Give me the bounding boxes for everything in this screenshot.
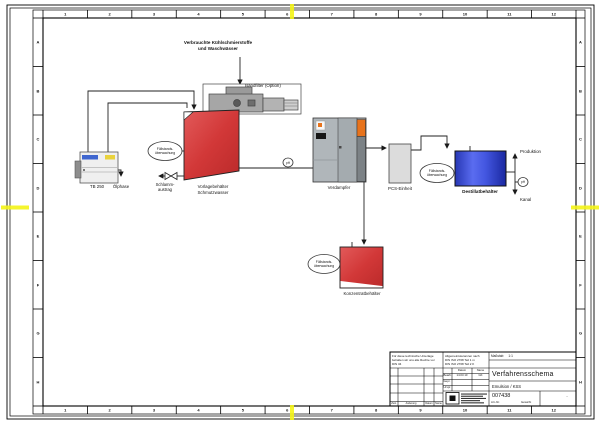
ruler-row-label-left: D [37, 185, 40, 190]
ruler-col-label-bottom: 8 [375, 408, 377, 413]
ruler-row-label-left: G [36, 331, 39, 336]
ruler-row-label-right: A [579, 40, 582, 45]
ruler-row-label-left: C [37, 137, 40, 142]
ruler-col-label-top: 1 [64, 12, 66, 17]
ruler-col-label-bottom: 1 [64, 408, 66, 413]
ruler-col-label-top: 3 [153, 12, 155, 17]
company-address-lines [461, 394, 487, 404]
ruler-col-label-bottom: 3 [153, 408, 155, 413]
ruler-col-label-bottom: 10 [463, 408, 467, 413]
gepr-label: Gepr. [444, 380, 456, 383]
ruler-row-label-left: B [37, 88, 40, 93]
destillatbehaelter-label: Destillatbehälter [438, 189, 522, 195]
rev-aenderung-label: Änderung [398, 402, 424, 405]
ruler-row-label-right: H [579, 379, 582, 384]
part-number: 007438 [492, 393, 537, 400]
ruler-row-label-left: E [37, 234, 40, 239]
scale-field: Maßstab 1:1 [491, 354, 551, 358]
ruler-col-label-top: 6 [286, 12, 288, 17]
schematic-canvas [0, 0, 600, 424]
drawing-sheet: 112233445566778899101011111212AABBCCDDEE… [0, 0, 600, 424]
vorlagebehaelter-tank [184, 110, 239, 180]
ruler-row-label-left: F [37, 282, 39, 287]
center-fold-marks [1, 4, 599, 420]
bandfilter-machine [203, 84, 301, 114]
destillatbehaelter-tank [455, 151, 506, 186]
weight-label: Gewicht [521, 401, 541, 404]
kanal-label: Kanal [520, 197, 550, 203]
tolerances-note: Allgemeintoleranzen nach DIN ISO 2768 Te… [445, 354, 489, 366]
produktion-label: Produktion [520, 149, 564, 155]
ruler-row-label-right: D [579, 185, 582, 190]
verdampfer-cabinet [313, 118, 366, 182]
ph-label-2: pH [518, 180, 528, 184]
ruler-col-label-bottom: 4 [197, 408, 199, 413]
ruler-col-label-bottom: 2 [109, 408, 111, 413]
ruler-col-label-top: 5 [242, 12, 244, 17]
scale-label: Maßstab [491, 354, 503, 358]
pipe-oelphase [118, 170, 121, 176]
tb250-separator [75, 152, 118, 183]
ruler-row-label-left: H [37, 379, 40, 384]
verdampfer-display [316, 133, 326, 139]
ruler-row-label-right: C [579, 137, 582, 142]
weight-value: - [562, 393, 572, 398]
urspr-label: Urspr. [444, 386, 458, 389]
ruler-col-label-top: 10 [463, 12, 467, 17]
rev-datum-label: Datum [424, 402, 434, 405]
ruler-row-label-right: G [579, 331, 582, 336]
ruler-col-label-top: 9 [419, 12, 421, 17]
col-datum-header: Datum [452, 369, 472, 372]
scale-value: 1:1 [508, 354, 512, 358]
valve-icon [165, 173, 177, 180]
oelphase-label: Ölphase [101, 184, 141, 190]
level-monitor-label-destillat: Füllstands- überwachung [420, 169, 454, 178]
ruler-row-label-right: B [579, 88, 582, 93]
ruler-col-label-top: 12 [552, 12, 556, 17]
bearb-name: GK [472, 374, 489, 377]
part-number-label: Art.-Nr. [491, 401, 511, 404]
feed-label: Verbrauchte Kühlschmierstoffe und Waschw… [168, 40, 268, 51]
pipe-pcs-to-destillat [411, 136, 447, 150]
ruler-row-label-right: F [579, 282, 581, 287]
ruler-col-label-bottom: 11 [507, 408, 511, 413]
ruler-col-label-top: 8 [375, 12, 377, 17]
verdampfer-label: Verdampfer [309, 185, 369, 191]
drawing-subtitle: Emulsion / KSS [492, 384, 572, 389]
pipe-tb250-return [88, 91, 194, 152]
ruler-col-label-bottom: 5 [242, 408, 244, 413]
ruler-row-label-right: E [579, 234, 582, 239]
bearb-date: 14.03.10 [452, 374, 472, 377]
company-logo [446, 393, 487, 405]
rev-name-label: Name [434, 402, 443, 405]
ruler-row-label-left: A [37, 40, 40, 45]
col-name-header: Name [472, 369, 489, 372]
pcs-label: PCS-Einheit [374, 186, 426, 192]
level-monitor-label-vorlage: Füllstands- überwachung [148, 147, 182, 156]
ruler-col-label-bottom: 9 [419, 408, 421, 413]
ruler-col-label-top: 2 [109, 12, 111, 17]
ruler-col-label-bottom: 7 [331, 408, 333, 413]
vorlagebehaelter-label: Vorlagebehälter Schmutzwasser [172, 184, 254, 195]
ruler-col-label-bottom: 12 [552, 408, 556, 413]
ph-label-1: pH [283, 161, 293, 165]
ruler-col-label-top: 11 [507, 12, 511, 17]
drawing-title: Verfahrensschema [492, 371, 574, 380]
rev-zust-label: Zust. [390, 402, 398, 405]
ruler-col-label-top: 4 [197, 12, 199, 17]
konzentratbehaelter-tank [340, 247, 383, 288]
rights-note: Für diese technische Unterlage behalten … [392, 354, 442, 366]
ruler-col-label-top: 7 [331, 12, 333, 17]
ruler-col-label-bottom: 6 [286, 408, 288, 413]
konzentratbehaelter-label: Konzentratbehälter [320, 291, 404, 297]
level-monitor-label-konzentrat: Füllstands- überwachung [307, 260, 341, 269]
bandfilter-label: Bandfilter (Option) [226, 83, 300, 89]
pcs-unit [389, 144, 411, 183]
